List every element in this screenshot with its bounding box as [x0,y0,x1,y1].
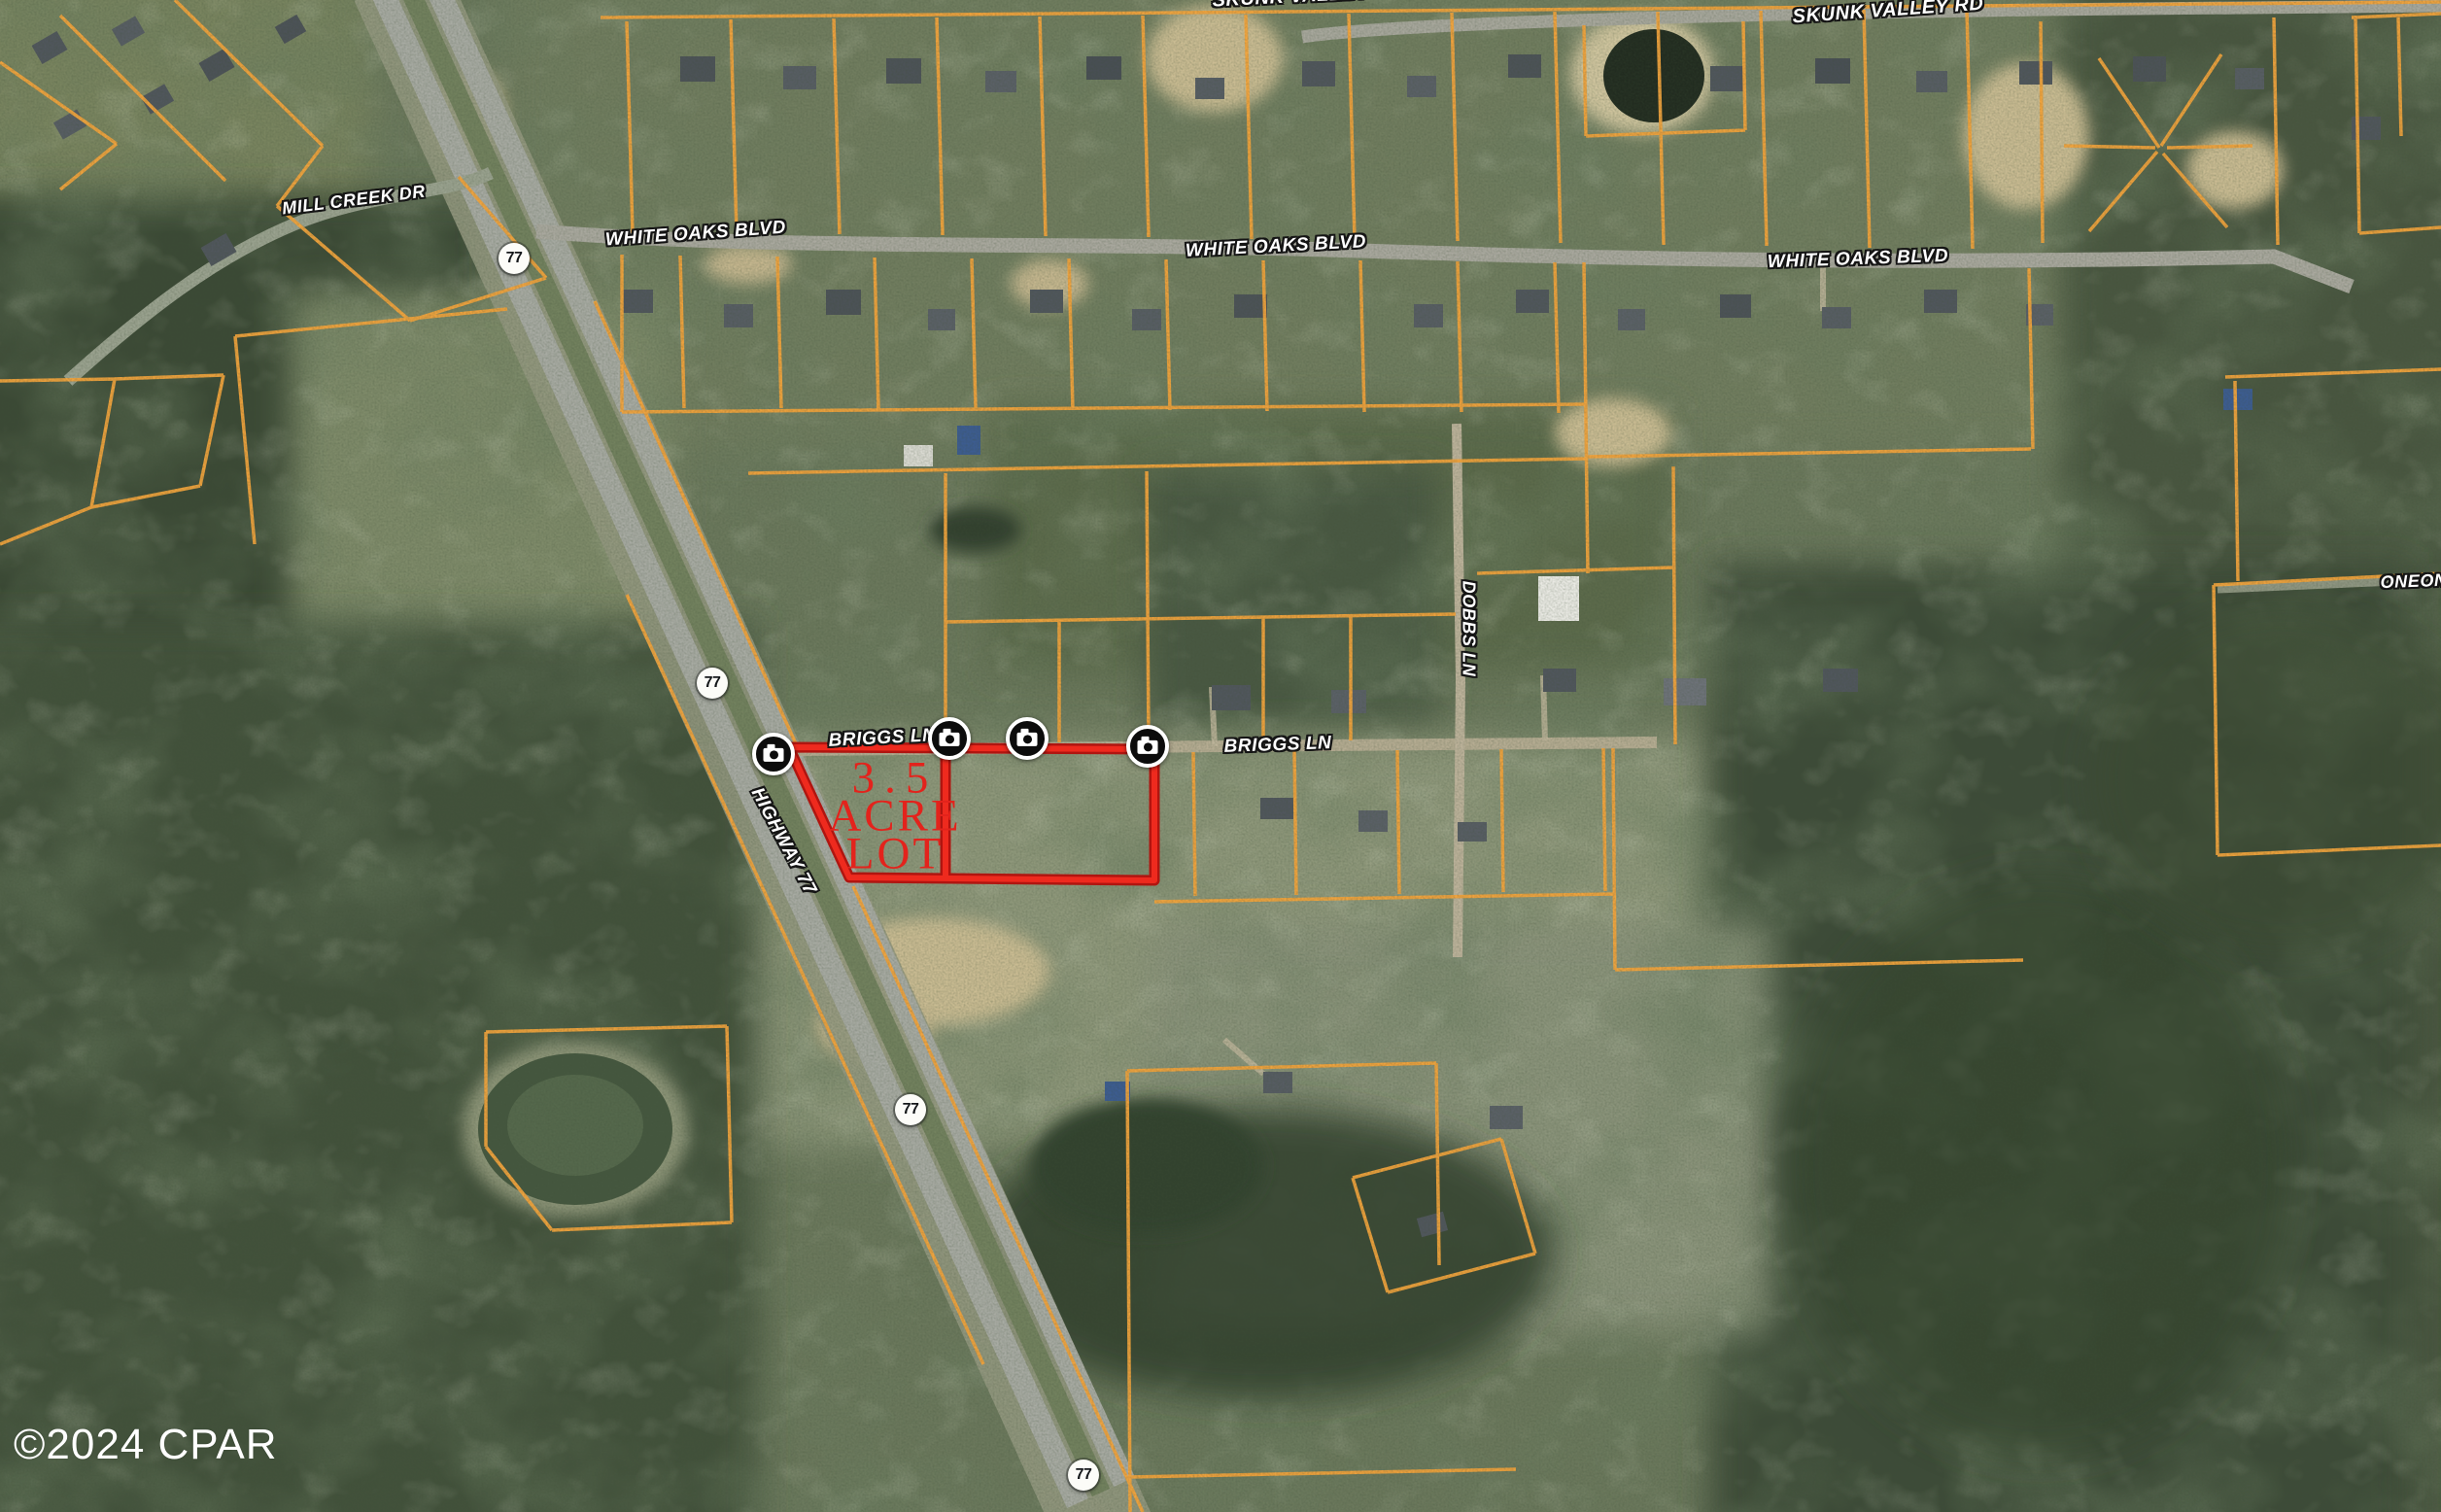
highway-77-shield-2: 77 [697,668,728,699]
highway-77-shield-1: 77 [499,243,530,274]
photo-camera-marker-2[interactable] [928,717,971,760]
camera-icon [1017,733,1038,746]
highway-77-shield-3: 77 [895,1094,926,1125]
highway-77-shield-4: 77 [1068,1460,1099,1491]
camera-icon [940,733,960,746]
camera-icon [1138,740,1158,754]
photo-camera-marker-4[interactable] [1126,725,1169,768]
markers-layer: 77777777 [0,0,2441,1512]
camera-icon [764,748,784,762]
photo-camera-marker-3[interactable] [1006,717,1049,760]
copyright-watermark: ©2024 CPAR [14,1421,278,1469]
aerial-parcel-map: SKUNK VALLEY RDSKUNK VALLEY RDMILL CREEK… [0,0,2441,1512]
photo-camera-marker-1[interactable] [752,733,795,775]
